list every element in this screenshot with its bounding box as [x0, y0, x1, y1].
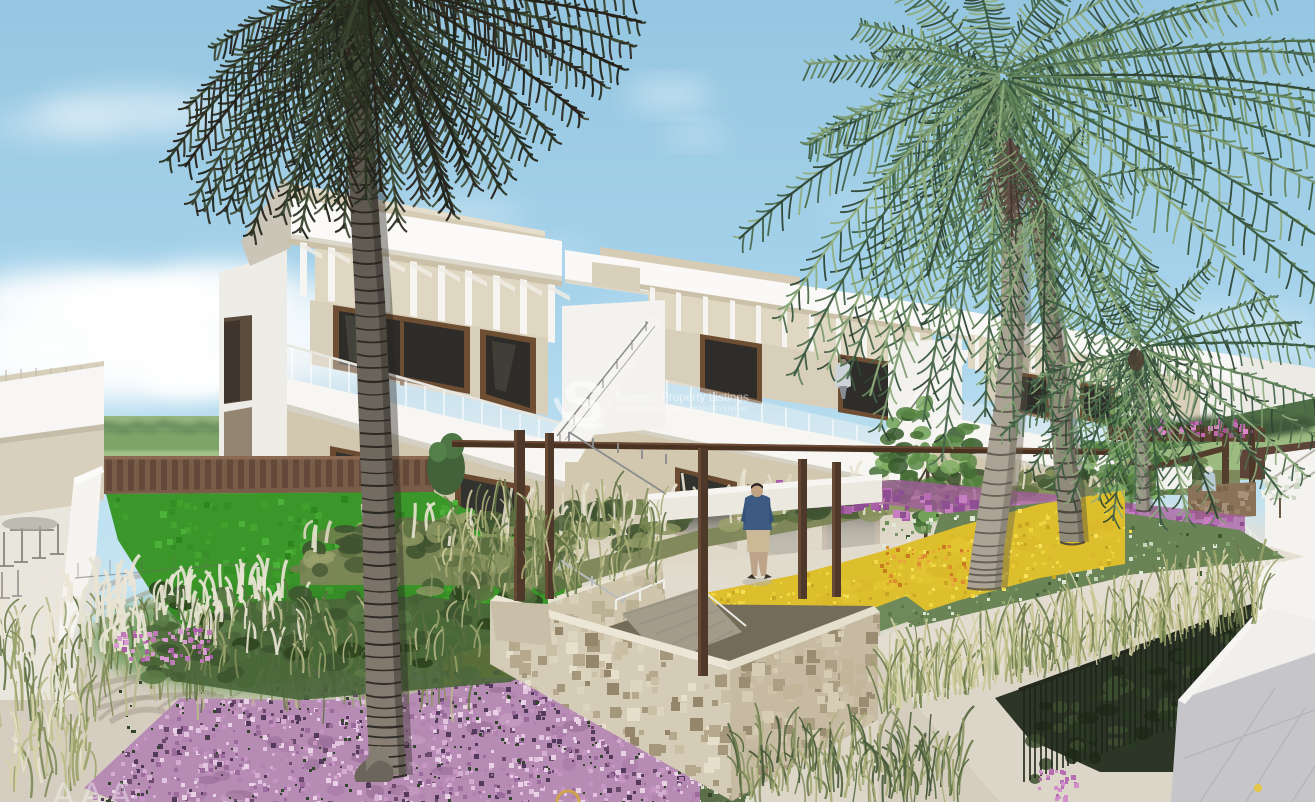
- svg-text:THE LARGEST SPANISH PROPERTY L: THE LARGEST SPANISH PROPERTY LISTING: [616, 407, 748, 413]
- svg-text:Spanish Property Listings: Spanish Property Listings: [615, 390, 749, 404]
- svg-text:A A A: A A A: [52, 776, 132, 802]
